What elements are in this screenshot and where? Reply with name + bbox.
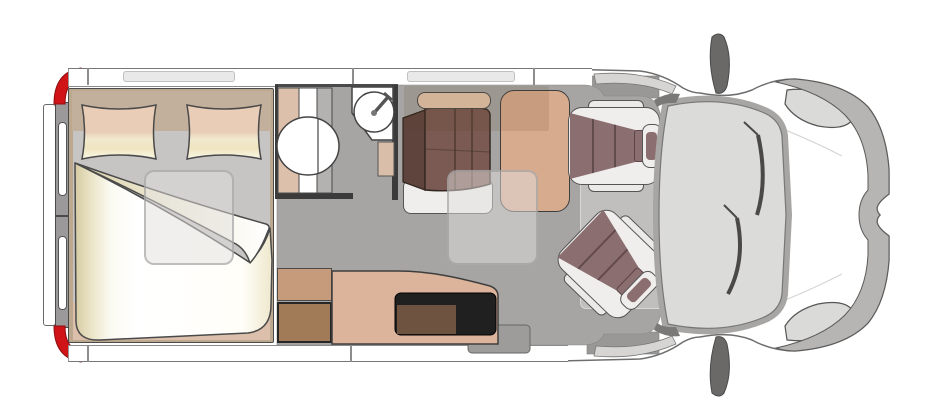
corner-washbasin bbox=[352, 87, 394, 140]
wing-mirror-bottom-icon bbox=[710, 337, 729, 396]
floorplan-canvas bbox=[0, 0, 950, 407]
cooktop-inset bbox=[397, 305, 456, 334]
wardrobe bbox=[277, 268, 332, 301]
bathroom-wall-bottom bbox=[277, 193, 353, 199]
kitchen-unit bbox=[330, 264, 502, 348]
pillow-right bbox=[187, 105, 261, 159]
overhead-locker-shadow bbox=[404, 86, 549, 131]
windshield bbox=[630, 85, 810, 345]
washbasin-cabinet bbox=[378, 142, 394, 176]
rear-door-panel bbox=[58, 236, 67, 310]
skylight-over-dinette bbox=[447, 170, 538, 265]
windshield-glass bbox=[659, 102, 786, 329]
wall-joint bbox=[87, 345, 89, 362]
pillow-left bbox=[82, 105, 156, 159]
rear-door-panel bbox=[58, 122, 67, 196]
toilet bbox=[277, 117, 339, 175]
bathroom bbox=[274, 82, 399, 204]
wall-joint bbox=[87, 68, 89, 85]
refrigerator bbox=[277, 302, 332, 343]
skylight-over-bed bbox=[144, 170, 234, 265]
window-top-rear bbox=[123, 71, 235, 82]
